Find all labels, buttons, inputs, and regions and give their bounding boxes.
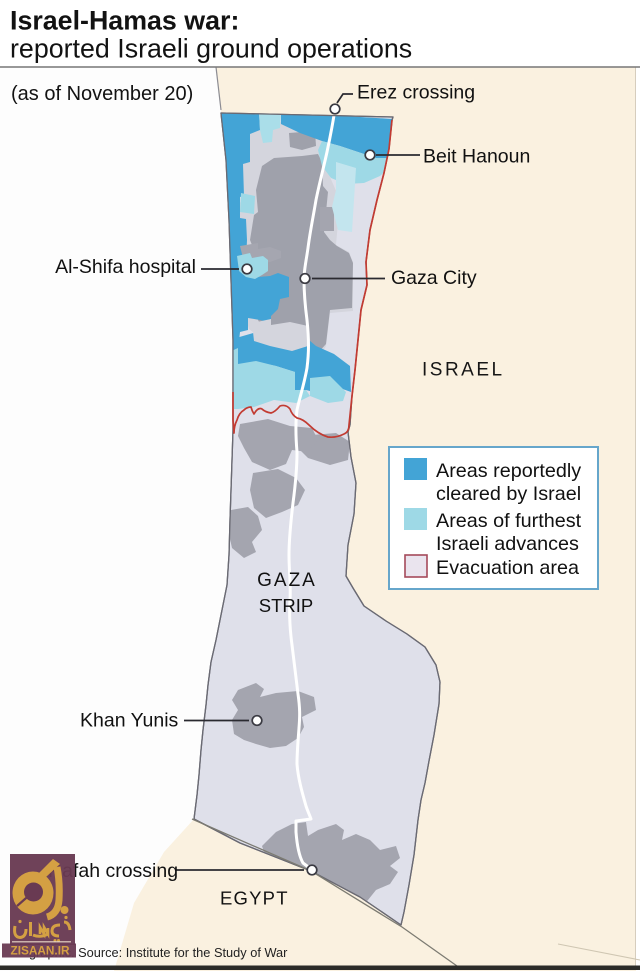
svg-text:ISRAEL: ISRAEL <box>422 360 505 381</box>
svg-text:Areas reportedly: Areas reportedly <box>436 460 581 482</box>
svg-text:Khan Yunis: Khan Yunis <box>80 710 179 732</box>
svg-text:GAZA: GAZA <box>257 570 317 591</box>
svg-text:reported Israeli ground operat: reported Israeli ground operations <box>10 34 412 64</box>
svg-text:cleared by Israel: cleared by Israel <box>436 483 581 505</box>
svg-text:Al-Shifa hospital: Al-Shifa hospital <box>55 256 196 278</box>
svg-text:EGYPT: EGYPT <box>220 888 289 909</box>
svg-text:(as of November 20): (as of November 20) <box>11 83 193 105</box>
svg-text:Gaza City: Gaza City <box>391 267 477 289</box>
svg-text:Israel-Hamas war:: Israel-Hamas war: <box>10 6 239 36</box>
svg-text:Areas of furthest: Areas of furthest <box>436 510 582 532</box>
svg-text:Evacuation area: Evacuation area <box>436 557 579 579</box>
svg-text:Israeli advances: Israeli advances <box>436 533 579 555</box>
svg-text:STRIP: STRIP <box>259 595 313 616</box>
svg-text:Beit Hanoun: Beit Hanoun <box>423 146 530 168</box>
svg-text:Erez crossing: Erez crossing <box>357 82 475 104</box>
svg-text:ZISAAN.IR: ZISAAN.IR <box>11 944 70 958</box>
